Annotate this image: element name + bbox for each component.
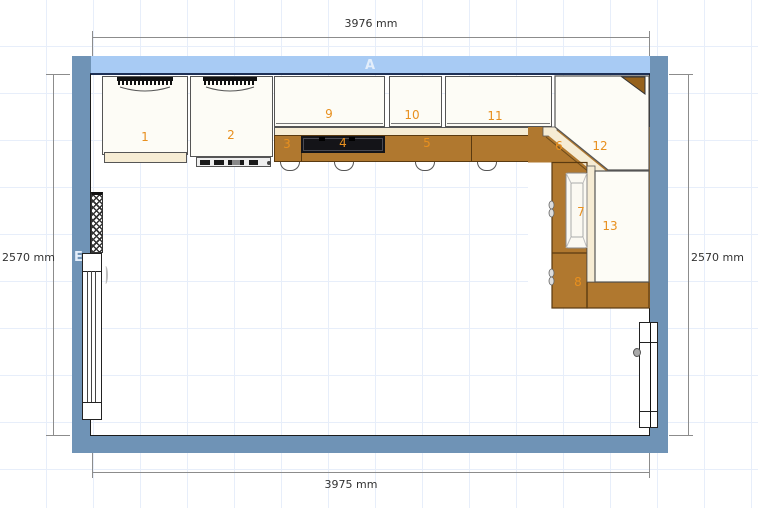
wall-label-a: A [340, 57, 400, 74]
cabinet-front-line [276, 123, 383, 124]
unit-label-8: 8 [568, 275, 588, 289]
window-divider-bottom [83, 402, 101, 403]
door-divider-top [640, 342, 657, 343]
unit-label-13: 13 [596, 219, 624, 233]
unit-label-2: 2 [221, 128, 241, 142]
door-leaf-line [650, 323, 651, 427]
door-right[interactable] [639, 322, 658, 428]
unit-2-oven-front [196, 157, 271, 167]
dim-left-tick-bottom [46, 435, 70, 436]
unit-label-10: 10 [398, 108, 426, 122]
window-pane-line [91, 271, 92, 402]
dim-top-tick-left [92, 31, 93, 56]
window-handle [103, 266, 108, 284]
oven-handle-segment [214, 160, 224, 165]
door-handle [633, 348, 641, 357]
unit-label-11: 11 [481, 109, 509, 123]
oven-handle-segment [249, 160, 258, 165]
unit-label-7: 7 [571, 205, 591, 219]
dim-bottom-tick-right [649, 453, 650, 478]
unit-label-3: 3 [277, 137, 297, 151]
dim-left-label: 2570 mm [2, 251, 55, 264]
dim-right-tick-bottom [669, 435, 693, 436]
floor-plan-canvas[interactable]: 3976 mm 3975 mm 2570 mm 2570 mm A E [0, 0, 758, 508]
cream-divider-strip [587, 166, 595, 282]
dim-right-label: 2570 mm [691, 251, 744, 264]
wall-bottom [72, 436, 668, 453]
window-divider-top [83, 271, 101, 272]
dim-bottom-label: 3975 mm [311, 478, 391, 491]
unit-label-6: 6 [549, 139, 569, 153]
dim-top-label: 3976 mm [331, 17, 411, 30]
dim-right-tick-top [669, 74, 693, 75]
dim-top-line [92, 37, 650, 38]
dim-bottom-tick-left [92, 453, 93, 478]
oven-handle-segment [200, 160, 210, 165]
window-pane-line [95, 271, 96, 402]
unit-label-4: 4 [333, 136, 353, 150]
oven-handle-segment [228, 160, 244, 165]
unit-label-9: 9 [319, 107, 339, 121]
dim-left-tick-top [46, 74, 70, 75]
window-pane-line [87, 271, 88, 402]
window-left[interactable] [82, 253, 102, 420]
cabinet-front-line [391, 123, 440, 124]
floor-patch [528, 163, 552, 309]
dim-right-line [688, 75, 689, 435]
cooktop-notch [319, 137, 325, 141]
unit-label-5: 5 [417, 136, 437, 150]
vent-grill-icon [117, 77, 173, 95]
dim-bottom-line [92, 472, 650, 473]
unit-2-knob [267, 161, 271, 165]
door-divider-bottom [640, 411, 657, 412]
unit-label-12: 12 [586, 139, 614, 153]
unit-label-1: 1 [135, 130, 155, 144]
dim-top-tick-right [649, 31, 650, 56]
unit-1-plinth [104, 152, 187, 163]
vent-grill-icon [203, 77, 257, 95]
radiator[interactable] [91, 192, 103, 253]
